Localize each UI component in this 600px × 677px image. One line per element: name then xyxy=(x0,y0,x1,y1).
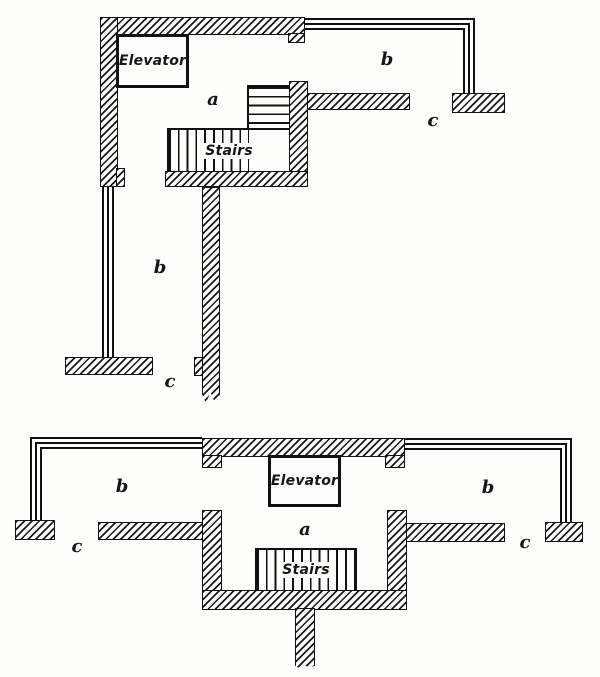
upper-label-b-left: b xyxy=(154,259,167,277)
upper-bottom-left-pier xyxy=(65,357,153,375)
upper-stair-bottom-wall xyxy=(165,171,308,187)
lower-top-wall-notch-left xyxy=(202,455,222,468)
floor-plan-figure: Elevator Stairs a b c b c xyxy=(0,0,600,677)
upper-label-a: a xyxy=(207,91,219,109)
upper-top-wall-end-notch xyxy=(288,33,305,43)
upper-stair-room: Stairs xyxy=(167,128,289,171)
lower-right-pier xyxy=(545,522,583,542)
lower-label-c-left: c xyxy=(72,538,83,556)
upper-corridor-wall-right xyxy=(307,93,410,110)
upper-stairs-label: Stairs xyxy=(202,143,255,159)
upper-label-c-right: c xyxy=(428,112,439,130)
lower-stair-bottom-wall xyxy=(202,590,407,610)
lower-stair-room: Stairs xyxy=(255,548,357,590)
upper-label-b-right: b xyxy=(381,51,394,69)
lower-stem-wall xyxy=(295,608,315,668)
lower-label-b-right: b xyxy=(482,479,495,497)
lower-left-pier xyxy=(15,520,55,540)
lower-elevator-label: Elevator xyxy=(271,473,338,489)
upper-top-wall xyxy=(100,17,305,35)
lower-corridor-wall-right xyxy=(404,523,505,542)
upper-elevator-label: Elevator xyxy=(119,53,186,69)
upper-window-wall-left xyxy=(102,185,114,359)
lower-label-b-left: b xyxy=(116,478,129,496)
upper-lower-wall xyxy=(202,187,220,403)
upper-elevator-shaft: Elevator xyxy=(116,34,189,88)
upper-label-c-bottom: c xyxy=(165,373,176,391)
upper-stair-flight-up xyxy=(247,85,289,128)
lower-top-wall-notch-right xyxy=(385,455,405,468)
lower-label-c-right: c xyxy=(520,534,531,552)
lower-elevator-shaft: Elevator xyxy=(268,455,341,507)
upper-lower-wall-step xyxy=(194,357,203,376)
lower-corridor-wall-left xyxy=(98,522,204,540)
upper-left-wall-foot xyxy=(116,168,125,187)
lower-stairs-label: Stairs xyxy=(279,562,332,578)
upper-right-pier xyxy=(452,93,505,113)
lower-label-a: a xyxy=(299,521,311,539)
